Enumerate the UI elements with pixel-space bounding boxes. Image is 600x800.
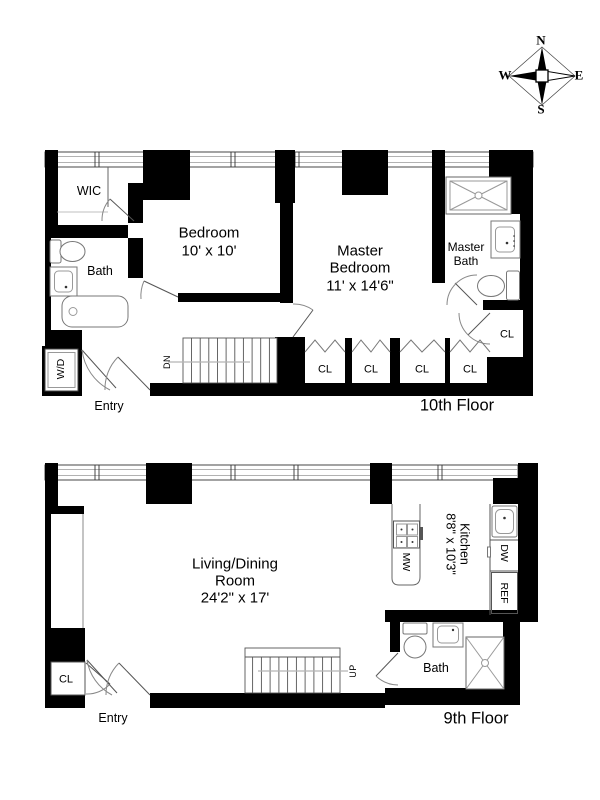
compass-rose-icon xyxy=(509,47,575,105)
compass-east-label: E xyxy=(575,69,584,84)
closet-label: CL xyxy=(415,364,429,377)
floor-plan-page: N W E S WIC Bedroom 10' x 10' Master Bed… xyxy=(0,0,600,800)
room-dims-living-dining: 24'2" x 17' xyxy=(201,589,270,606)
room-dims-bedroom: 10' x 10' xyxy=(182,242,237,259)
refrigerator-label: REF xyxy=(498,583,510,604)
bathtub-icon xyxy=(62,296,128,327)
sink-icon xyxy=(491,221,520,258)
sink-icon xyxy=(433,623,463,647)
room-label-master-bedroom: Bedroom xyxy=(330,259,391,276)
toilet-icon xyxy=(403,623,427,658)
room-label-living-dining: Living/Dining xyxy=(192,555,278,572)
closet-label-9th: CL xyxy=(59,674,73,687)
sink-icon xyxy=(50,267,77,296)
dishwasher-label: DW xyxy=(498,544,510,562)
closet-label: CL xyxy=(463,364,477,377)
compass-north-label: N xyxy=(536,34,545,49)
room-label-bath-9th: Bath xyxy=(423,661,449,675)
room-dims-master-bedroom: 11' x 14'6" xyxy=(326,277,394,294)
stairs-up-label: UP xyxy=(348,664,358,678)
floor-title-9th: 9th Floor xyxy=(443,710,508,729)
shower-icon xyxy=(466,637,504,689)
compass-west-label: W xyxy=(499,69,512,84)
room-label-master-bath: Bath xyxy=(454,255,479,269)
room-label-bath-10th: Bath xyxy=(87,264,113,278)
washer-dryer-label: W/D xyxy=(55,359,67,379)
cooktop-icon xyxy=(394,521,424,548)
microwave-label: MW xyxy=(400,553,412,572)
room-label-bedroom: Bedroom xyxy=(179,224,240,241)
entry-label-9th: Entry xyxy=(98,711,127,725)
floor-plan-9th xyxy=(45,463,538,708)
windows-9th xyxy=(45,465,518,480)
closet-label-hall: CL xyxy=(500,329,514,342)
stairs-10th xyxy=(168,338,277,383)
floor-plan-10th xyxy=(42,150,533,396)
room-label-master-bath: Master xyxy=(448,241,485,255)
floor-plan-canvas xyxy=(0,0,600,800)
closet-label: CL xyxy=(364,364,378,377)
toilet-icon xyxy=(50,240,85,263)
kitchen-dims: 8'8" x 10'3" xyxy=(443,513,457,575)
room-label-master-bedroom: Master xyxy=(337,242,383,259)
stairs-9th xyxy=(245,648,348,693)
shower-icon xyxy=(446,177,511,214)
floor-title-10th: 10th Floor xyxy=(420,397,494,416)
room-label-wic: WIC xyxy=(77,184,101,198)
kitchen-name: Kitchen xyxy=(457,513,471,575)
compass-south-label: S xyxy=(537,103,544,118)
room-label-living-dining: Room xyxy=(215,572,255,589)
entry-label-10th: Entry xyxy=(94,399,123,413)
room-label-kitchen: Kitchen 8'8" x 10'3" xyxy=(443,513,472,575)
kitchen-sink-icon xyxy=(492,506,517,537)
stairs-dn-label: DN xyxy=(162,355,172,369)
closet-label: CL xyxy=(318,364,332,377)
